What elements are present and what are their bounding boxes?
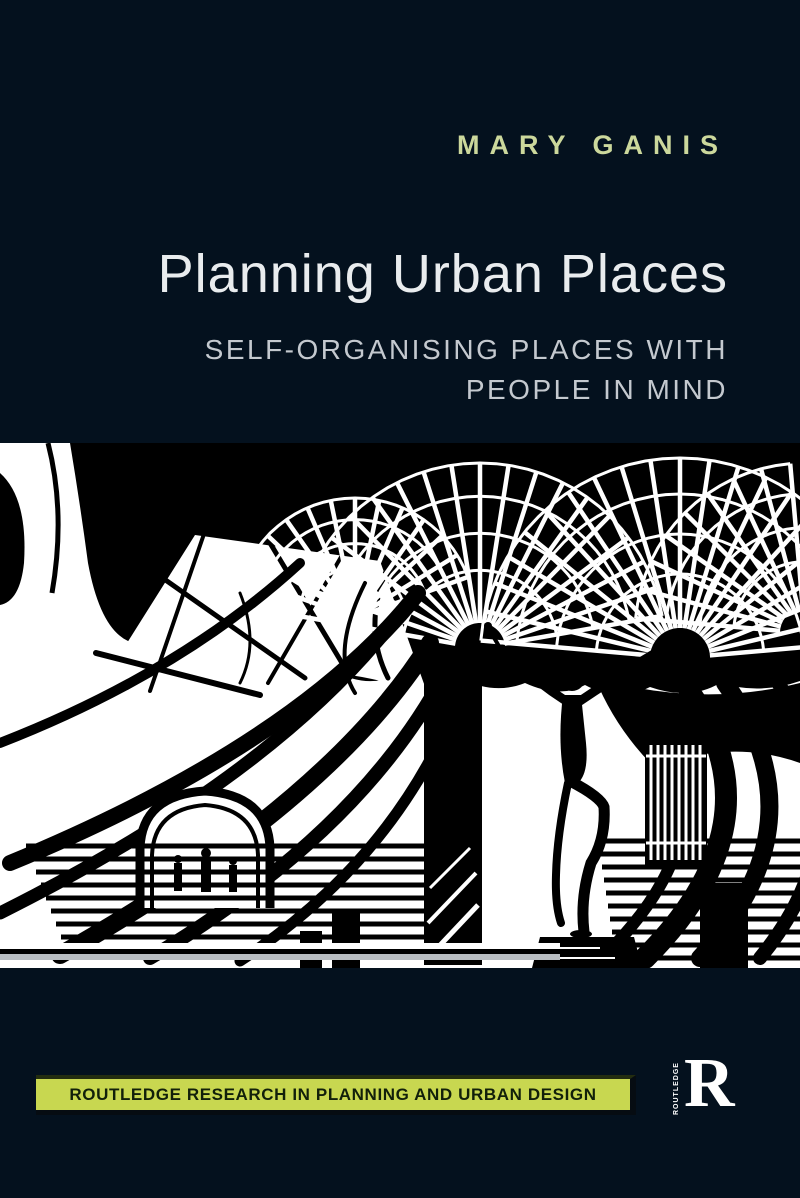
author-name: MARY GANIS	[457, 130, 728, 161]
series-label: ROUTLEDGE RESEARCH IN PLANNING AND URBAN…	[69, 1085, 596, 1105]
routledge-r-monogram-icon: R	[684, 1049, 735, 1119]
subtitle-line-1: SELF-ORGANISING PLACES WITH	[205, 330, 728, 370]
cover-artwork-illustration	[0, 443, 800, 968]
book-cover: MARY GANIS Planning Urban Places SELF-OR…	[0, 0, 800, 1198]
series-bar: ROUTLEDGE RESEARCH IN PLANNING AND URBAN…	[36, 1075, 636, 1115]
routledge-logo: ROUTLEDGE R	[672, 1044, 738, 1124]
subtitle-line-2: PEOPLE IN MIND	[205, 370, 728, 410]
book-title: Planning Urban Places	[158, 244, 728, 304]
artwork-svg	[0, 443, 800, 968]
routledge-wordmark-vertical: ROUTLEDGE	[672, 1053, 682, 1115]
book-subtitle: SELF-ORGANISING PLACES WITH PEOPLE IN MI…	[205, 330, 728, 410]
